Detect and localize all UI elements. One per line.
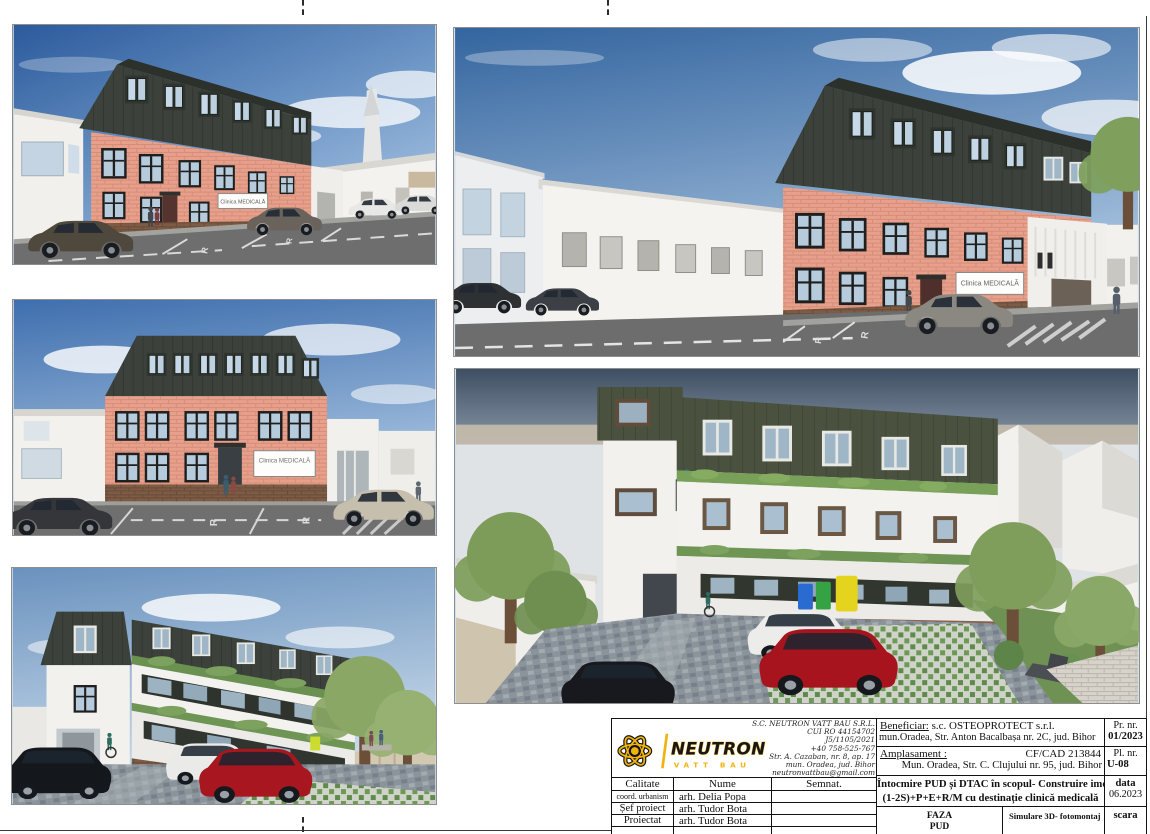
render-view-front-elevation: Clinica MEDICALĂ R R [12, 299, 437, 536]
drawing-sheet: { "sheet": { "sign_text": "Clinica MEDIC… [0, 0, 1150, 834]
main-building [597, 387, 998, 628]
signature-row-role: coord. urbanism [612, 791, 674, 803]
project-number-label: Pr. nr. [1105, 719, 1146, 731]
door-canopy [916, 274, 946, 279]
road-letter: R [860, 331, 872, 340]
signature-row-name: arh. Tudor Bota [674, 803, 772, 815]
signature-row-role: Șef proiect [612, 803, 674, 815]
registration-tick-top-left [302, 0, 304, 15]
door-canopy [214, 443, 246, 448]
site-label: Amplasament : [880, 748, 947, 760]
svg-text:Clinica MEDICALĂ: Clinica MEDICALĂ [259, 458, 311, 465]
plan-number-label: Pl. nr. [1105, 747, 1146, 759]
title-block: NEUTRON VATT BAU S.C. NEUTRON VATT BAU S… [611, 718, 1147, 834]
date-value: 06.2023 [1105, 789, 1146, 800]
company-cell: NEUTRON VATT BAU S.C. NEUTRON VATT BAU S… [612, 719, 877, 778]
clinic-sign: Clinica MEDICALĂ [254, 451, 315, 477]
phase-cell: FAZA PUD [877, 807, 1003, 834]
project-title-line1: Întocmire PUD și DTAC în scopul- Constru… [877, 776, 1104, 791]
col-header-nume: Nume [674, 778, 772, 791]
render-svg-3 [12, 568, 436, 804]
site-cfcad: CF/CAD 213844 [1026, 748, 1102, 760]
render-svg-1: Clinica MEDICALĂ R R [13, 25, 436, 264]
signature-row-empty [772, 827, 877, 834]
neighbor-building-left [14, 409, 107, 505]
render-view-street-perspective-left: Clinica MEDICALĂ R R [12, 24, 437, 265]
company-info: S.C. NEUTRON VATT BAU S.R.L. CUI RO 4415… [720, 720, 875, 778]
svg-text:Clinica MEDICALĂ: Clinica MEDICALĂ [961, 278, 1020, 287]
site-cell: Amplasament :CF/CAD 213844 Mun. Oradea, … [877, 747, 1105, 776]
signature-row-role: Proiectat [612, 815, 674, 827]
render-svg-4: Clinica MEDICALĂ R R [454, 28, 1139, 356]
registration-tick-top-right [607, 0, 609, 15]
beneficiary-label: Beneficiar: [880, 720, 929, 732]
phase-label: FAZA [877, 807, 1002, 822]
door-canopy [160, 192, 181, 196]
date-cell: data 06.2023 [1105, 776, 1146, 807]
beneficiary-name: s.c. OSTEOPROTECT s.r.l. [932, 720, 1055, 732]
clinic-sign: Clinica MEDICALĂ [218, 194, 268, 209]
beneficiary-cell: Beneficiar: s.c. OSTEOPROTECT s.r.l. mun… [877, 719, 1105, 747]
plan-number-cell: Pl. nr. U-08 [1105, 747, 1146, 776]
signature-row-name: arh. Delia Popa [674, 791, 772, 803]
drawing-title-cell: Simulare 3D- fotomontaj [1003, 807, 1105, 834]
project-title-cell: Întocmire PUD și DTAC în scopul- Constru… [877, 776, 1105, 807]
project-number-cell: Pr. nr. 01/2023 [1105, 719, 1146, 747]
project-title-line2: (1-2S)+P+E+R/M cu destinație clinică med… [877, 791, 1104, 805]
signature-row-signature [772, 803, 877, 815]
col-header-semnat: Semnat. [772, 778, 877, 791]
project-number-value: 01/2023 [1105, 731, 1146, 742]
company-email: neutronvattbau@gmail.com [720, 769, 875, 777]
road-letter: R [209, 519, 220, 526]
road-letter: R [301, 517, 312, 524]
render-view-street-perspective-large: Clinica MEDICALĂ R R [453, 27, 1140, 357]
signature-row-signature [772, 791, 877, 803]
bench [362, 745, 392, 751]
atom-icon [619, 735, 650, 768]
site-address: Mun. Oradea, Str. C. Clujului nr. 95, ju… [877, 760, 1104, 771]
svg-text:Clinica MEDICALĂ: Clinica MEDICALĂ [220, 199, 265, 206]
col-header-calitate: Calitate [612, 778, 674, 791]
signature-row-signature [772, 815, 877, 827]
signature-row-empty [612, 827, 674, 834]
render-view-courtyard-rear [11, 567, 437, 805]
logo-slash [661, 734, 668, 768]
plan-number-value: U-08 [1105, 759, 1146, 770]
signature-row-empty [674, 827, 772, 834]
sheet-frame-bottom-line [0, 830, 612, 831]
beneficiary-address: mun.Oradea, Str. Anton Bacalbașa nr. 2C,… [877, 732, 1104, 743]
sheet-frame-right-line [1146, 16, 1147, 834]
render-svg-2: Clinica MEDICALĂ R R [13, 300, 436, 535]
clinic-sign: Clinica MEDICALĂ [956, 273, 1024, 295]
scale-cell: scara [1105, 807, 1146, 834]
waste-bin [310, 737, 320, 751]
render-view-courtyard-aerial [454, 368, 1140, 704]
phase-value: PUD [877, 822, 1002, 833]
date-label: data [1105, 776, 1146, 789]
render-svg-5 [455, 369, 1139, 703]
signature-row-name: arh. Tudor Bota [674, 815, 772, 827]
